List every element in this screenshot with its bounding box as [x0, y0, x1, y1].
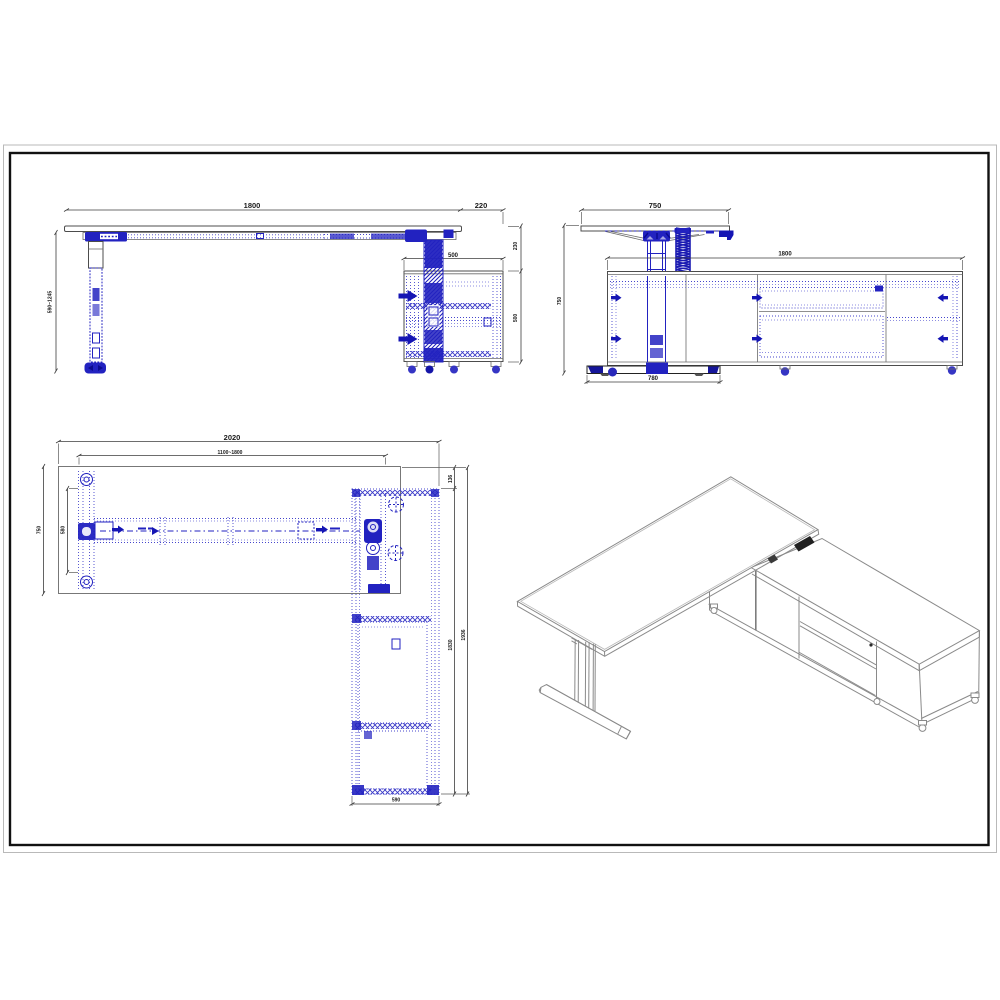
svg-text:1100~1800: 1100~1800 — [218, 450, 243, 456]
svg-text:500: 500 — [513, 314, 519, 323]
svg-text:750: 750 — [37, 526, 43, 535]
svg-text:2020: 2020 — [224, 433, 241, 442]
svg-text:1830: 1830 — [448, 639, 454, 650]
svg-text:590: 590 — [392, 798, 401, 804]
svg-text:750: 750 — [557, 297, 563, 306]
svg-text:590~1245: 590~1245 — [48, 291, 54, 314]
svg-text:750: 750 — [649, 201, 662, 210]
svg-text:580: 580 — [61, 526, 67, 535]
svg-text:1800: 1800 — [778, 252, 792, 258]
svg-text:230: 230 — [513, 242, 519, 251]
svg-text:500: 500 — [448, 253, 459, 259]
svg-text:1936: 1936 — [461, 629, 467, 640]
svg-text:780: 780 — [648, 376, 659, 382]
svg-text:220: 220 — [475, 201, 488, 210]
svg-text:136: 136 — [448, 475, 454, 484]
svg-text:1800: 1800 — [244, 201, 261, 210]
